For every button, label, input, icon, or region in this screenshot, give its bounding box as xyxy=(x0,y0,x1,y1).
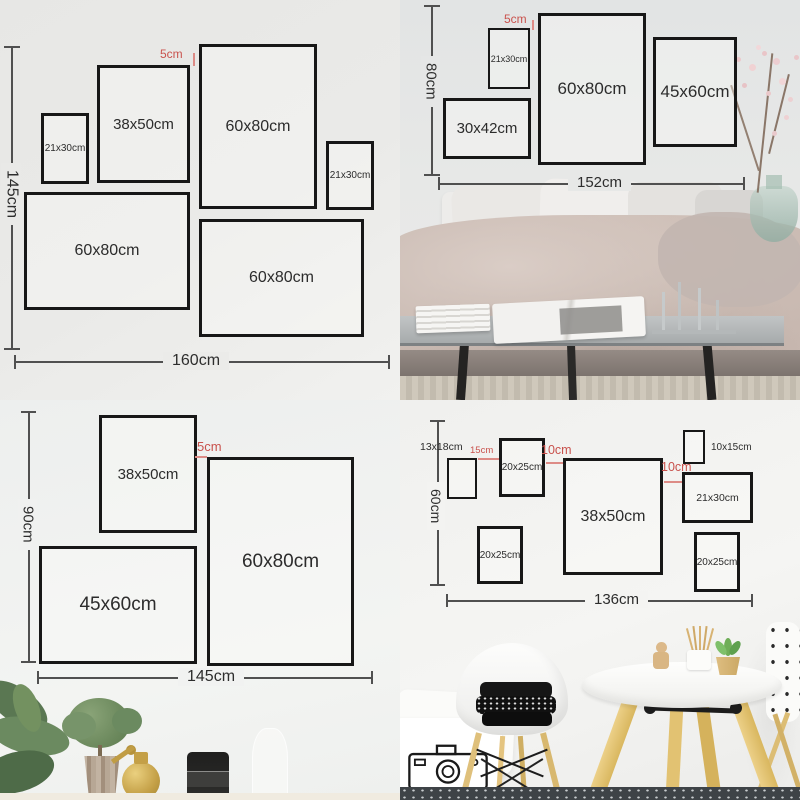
frame-size-label: 20x25cm xyxy=(697,557,738,568)
frame-size-label: 60x80cm xyxy=(226,118,291,136)
frame-20x25: 20x25cm xyxy=(694,532,740,592)
height-dimension-label: 145cm xyxy=(1,163,21,225)
dimension-end-tick xyxy=(4,46,20,48)
frame-size-label: 30x42cm xyxy=(457,120,518,137)
folded-clothes xyxy=(482,712,552,726)
frame-size-label: 38x50cm xyxy=(581,508,646,526)
frame-size-label: 21x30cm xyxy=(696,492,739,504)
pencil xyxy=(699,626,701,652)
candlestick xyxy=(662,292,665,330)
frame-size-label: 60x80cm xyxy=(249,269,314,287)
frame-38x50: 38x50cm xyxy=(563,458,663,575)
watering-can-top xyxy=(134,752,148,764)
frame-20x25: 20x25cm xyxy=(477,526,523,584)
dimension-end-tick xyxy=(21,411,36,413)
tabletop-surface xyxy=(0,793,400,800)
height-dimension-label: 80cm xyxy=(421,56,440,107)
frame-60x80: 60x80cm xyxy=(207,457,354,666)
frame-45x60: 45x60cm xyxy=(653,37,737,147)
side-object xyxy=(766,622,800,722)
frame-38x50: 38x50cm xyxy=(99,415,197,533)
frame-20x25: 20x25cm xyxy=(499,438,545,497)
pencil-cup xyxy=(687,650,711,670)
gap-label-5cm: 5cm xyxy=(197,439,222,454)
table-leg xyxy=(695,700,722,800)
frame-13x18 xyxy=(447,458,477,499)
dimension-end-tick xyxy=(371,671,373,684)
frame-size-label-outside: 10x15cm xyxy=(711,442,752,454)
width-dimension-label: 145cm xyxy=(178,668,244,686)
frame-size-label: 60x80cm xyxy=(558,79,627,99)
table-leg xyxy=(588,698,638,799)
gap-line xyxy=(546,462,563,464)
glass-vase xyxy=(750,186,798,242)
gap-line xyxy=(664,481,682,483)
frame-size-label: 45x60cm xyxy=(661,82,730,102)
gap-line xyxy=(478,458,499,460)
gap-tick xyxy=(193,53,195,66)
gap-label-10cm: 10cm xyxy=(541,443,572,457)
frame-21x30: 21x30cm xyxy=(41,113,89,184)
dimension-end-tick xyxy=(751,594,753,607)
dimension-end-tick xyxy=(4,348,20,350)
frame-21x30: 21x30cm xyxy=(326,141,374,210)
dimension-end-tick xyxy=(438,177,440,190)
frame-45x60: 45x60cm xyxy=(39,546,197,664)
frame-size-label-outside: 13x18cm xyxy=(420,441,463,453)
dimension-end-tick xyxy=(446,594,448,607)
frame-size-label: 60x80cm xyxy=(242,551,319,573)
branch-stem xyxy=(768,74,790,154)
succulent-plant xyxy=(714,634,742,660)
topiary-foliage xyxy=(62,712,96,740)
candlestick xyxy=(698,288,701,330)
frame-60x80: 60x80cm xyxy=(24,192,190,310)
frame-size-label: 38x50cm xyxy=(113,116,174,133)
dimension-end-tick xyxy=(37,671,39,684)
dimension-end-tick xyxy=(14,355,16,369)
gallery-wall-size-guide-collage: { "colors": { "frame_border": "#171717",… xyxy=(0,0,800,800)
gap-label-10cm: 10cm xyxy=(661,460,692,474)
width-dimension-label: 160cm xyxy=(163,352,229,370)
dimension-end-tick xyxy=(424,174,440,176)
dimension-end-tick xyxy=(430,420,445,422)
frame-10x15 xyxy=(683,430,705,464)
candlestick xyxy=(678,282,681,330)
dimension-end-tick xyxy=(424,5,440,7)
quadrant-top-right-bedroom: 21x30cm 60x80cm 45x60cm 30x42cm 5cm 80cm… xyxy=(400,0,800,400)
frame-30x42: 30x42cm xyxy=(443,98,531,159)
height-dimension-label: 60cm xyxy=(427,482,445,530)
pencil xyxy=(706,628,714,652)
book-stack xyxy=(416,304,491,334)
frame-21x30: 21x30cm xyxy=(682,472,753,523)
frame-size-label: 38x50cm xyxy=(118,466,179,483)
gap-tick xyxy=(532,20,534,30)
frame-38x50: 38x50cm xyxy=(97,65,190,183)
table-leg xyxy=(665,702,683,800)
width-dimension-label: 152cm xyxy=(568,174,631,191)
height-dimension-label: 90cm xyxy=(18,499,37,550)
candlestick-holders xyxy=(652,282,736,334)
gap-label-5cm: 5cm xyxy=(504,12,527,26)
quadrant-top-left-wall-diagram: 21x30cm 38x50cm 60x80cm 21x30cm 60x80cm … xyxy=(0,0,400,400)
branch-stem xyxy=(757,53,774,192)
frame-size-label: 21x30cm xyxy=(45,143,86,154)
dimension-end-tick xyxy=(743,177,745,190)
frame-60x80: 60x80cm xyxy=(199,219,364,337)
frame-size-label: 45x60cm xyxy=(79,594,156,616)
frame-size-label: 21x30cm xyxy=(330,170,371,181)
quadrant-bottom-right-dining: 20x25cm 38x50cm 21x30cm 20x25cm 20x25cm … xyxy=(400,400,800,800)
frame-size-label: 21x30cm xyxy=(491,54,528,64)
width-dimension-label: 136cm xyxy=(585,591,648,608)
topiary-foliage xyxy=(112,708,142,734)
gap-tick xyxy=(195,456,207,458)
jar-label xyxy=(187,771,229,787)
quadrant-bottom-left-console: 38x50cm 60x80cm 45x60cm 5cm 90cm 145cm xyxy=(0,400,400,800)
frame-size-label: 60x80cm xyxy=(75,242,140,260)
gap-label-15cm: 15cm xyxy=(470,445,493,456)
round-table-top xyxy=(582,662,782,708)
gap-label-5cm: 5cm xyxy=(160,47,183,61)
glass-bottle xyxy=(252,728,288,800)
dimension-end-tick xyxy=(430,584,445,586)
frame-60x80: 60x80cm xyxy=(199,44,317,209)
dimension-end-tick xyxy=(388,355,390,369)
frame-60x80: 60x80cm xyxy=(538,13,646,165)
frame-21x30: 21x30cm xyxy=(488,28,530,89)
wooden-toy-body xyxy=(653,652,669,669)
dimension-end-tick xyxy=(21,661,36,663)
candlestick-base xyxy=(652,330,736,334)
candlestick xyxy=(716,300,719,330)
frame-size-label: 20x25cm xyxy=(502,462,543,473)
magazine-photo xyxy=(559,305,622,334)
rug xyxy=(400,787,800,800)
frame-size-label: 20x25cm xyxy=(480,550,521,561)
